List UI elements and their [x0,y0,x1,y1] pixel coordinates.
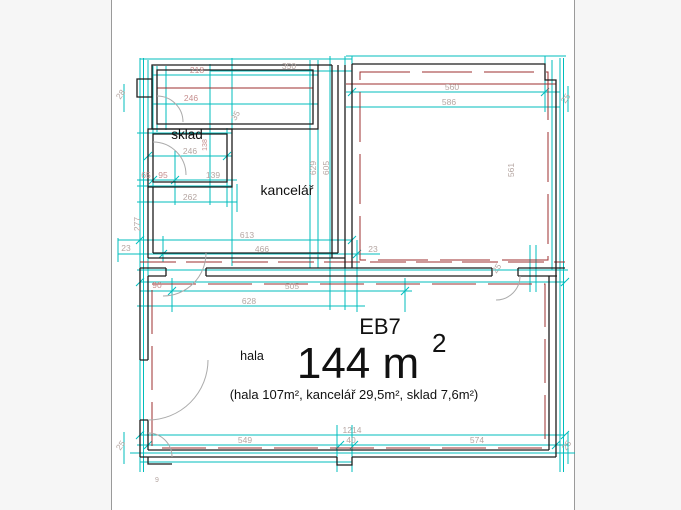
dimension-label: 40 [346,435,356,445]
dimension-label: 246 [184,93,198,103]
unit-area-superscript: 2 [432,328,446,358]
dimension-label: 65 [141,170,151,180]
room-label-hala: hala [240,349,264,363]
dimension-label: 139 [206,170,220,180]
door-arc-vestibule [157,96,183,122]
dimension-label: 25 [560,438,574,452]
dim-horizontal-mid [118,240,568,306]
wall-hala-right [549,268,556,457]
dimension-label: 95 [158,170,168,180]
dimension-label: 350 [282,61,296,71]
dim-vertical-right [530,56,564,472]
wall-right-room [352,64,556,268]
dimension-label: 25 [114,438,128,452]
unit-area-details: (hala 107m², kancelář 29,5m², sklad 7,6m… [230,387,479,402]
dimension-label: 560 [445,82,459,92]
unit-area: 144 m [297,339,419,388]
dimension-label: 246 [183,146,197,156]
dimension-label: 9 [155,477,159,484]
dimension-label: 218 [190,65,204,75]
dimension-label: 549 [238,435,252,445]
dimension-label: 35 [229,109,243,122]
dim-vertical-mid [163,58,237,312]
dimension-label: 28 [114,87,128,101]
dimension-lines [118,56,575,472]
dimension-label: 605 [321,161,331,175]
wall-lines [137,64,565,465]
dimension-label: 277 [132,217,142,231]
wall-hala-bottom [140,450,556,465]
unit-info: EB7 144 m 2 (hala 107m², kancelář 29,5m²… [230,314,479,402]
room-label-sklad: sklad [171,127,203,142]
wall-kancelar [148,187,345,258]
unit-code: EB7 [359,314,401,339]
dimension-label: 586 [442,97,456,107]
dimension-label: 629 [308,161,318,175]
dim-vertical-center [310,56,405,472]
dimension-label: 1214 [343,425,362,435]
dimension-label: 466 [255,244,269,254]
room-labels: sklad kancelář hala [171,127,314,363]
floor-plan-svg: 2182462835056058625246659513926227735138… [0,0,681,510]
dimension-label: 90 [152,280,162,290]
dimension-label: 138 [202,139,209,151]
dimension-label: 25 [559,91,573,105]
dimension-label: 23 [368,244,378,254]
wall-pillar [137,79,152,97]
dimension-label: 628 [242,296,256,306]
dimension-label: 23 [121,243,131,253]
dimension-label: 505 [285,281,299,291]
floor-plan-page: 2182462835056058625246659513926227735138… [0,0,681,510]
door-arc-right [496,276,520,300]
door-arc-kancelar [163,253,206,296]
dim-vertical-left [140,58,166,472]
door-arc-hala-left [148,360,208,420]
dimension-label: 574 [470,435,484,445]
dimension-label: 613 [240,230,254,240]
dimension-label: 262 [183,192,197,202]
room-label-kancelar: kancelář [261,182,314,198]
dimension-label: 561 [506,163,516,177]
